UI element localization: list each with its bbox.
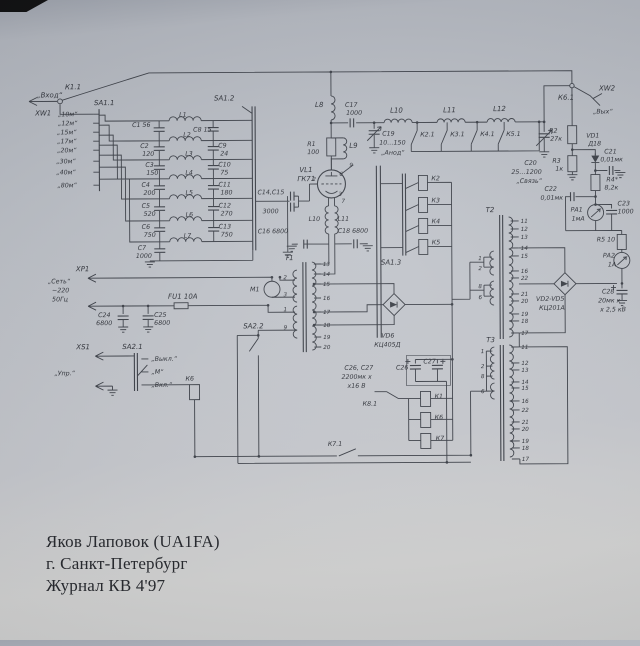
c27-label: С27: [423, 358, 435, 365]
l11f-label: L11: [338, 216, 350, 223]
k81-label: К8.1: [363, 401, 378, 408]
pi-l12-label: L12: [493, 105, 506, 113]
k51-label: К5.1: [506, 131, 521, 138]
c20-label: С20: [524, 160, 536, 167]
c22-value: 0,01мк: [541, 195, 564, 202]
cap-value: 24: [220, 150, 228, 157]
t2-pin: 21: [521, 292, 528, 298]
t1-pin: 1: [284, 307, 288, 313]
cap-label: С3: [145, 162, 153, 169]
t1-pin: 19: [323, 335, 331, 341]
c2627-note: С26, С27: [344, 365, 373, 372]
vl1-label: VL1: [299, 166, 312, 174]
t1-pin: 16: [323, 296, 331, 302]
t2-pin: 20: [521, 299, 529, 305]
c19-note: „Анод“: [381, 150, 405, 157]
pa2-meter-icon: [614, 252, 630, 268]
pos-m-label: „М“: [151, 369, 164, 376]
tube-pin: 9: [349, 163, 353, 169]
t3-pin: 22: [522, 408, 530, 414]
t2-pin: 14: [521, 246, 529, 252]
t1-pin: 3: [283, 292, 287, 298]
t2-pin: 19: [521, 312, 529, 318]
c1415-value: 3000: [263, 208, 279, 215]
sa22-label: SA2.2: [243, 322, 264, 330]
r3-label: R3: [552, 158, 560, 165]
band-label: „12м“: [58, 120, 78, 127]
t2-pin: 18: [521, 319, 529, 325]
r3-value: 1к: [555, 166, 563, 173]
t2-pin: 13: [521, 235, 529, 241]
cap-label: С12: [219, 202, 231, 209]
t2-pin: 17: [521, 331, 529, 337]
cap-value: 150: [146, 170, 158, 177]
c17-label: С17: [345, 102, 357, 109]
pa1-value: 1мА: [572, 216, 585, 223]
c19-label: С19: [382, 131, 394, 138]
sa21-label: SA2.1: [122, 343, 142, 351]
cap-value: 750: [144, 232, 156, 239]
m1-label: М1: [250, 286, 259, 293]
k2-label: К2: [431, 175, 440, 182]
band-label: „30м“: [56, 158, 76, 165]
vd1-label: VD1: [586, 133, 599, 140]
c18-label: С18 6800: [338, 228, 368, 235]
c25-label: С25: [154, 312, 166, 319]
k61-label: К6.1: [558, 94, 574, 102]
c28-value: 20мк х: [598, 297, 621, 304]
k6b-label: К6: [435, 414, 444, 421]
k31-label: К3.1: [450, 131, 465, 138]
band-label: „10м“: [58, 111, 78, 118]
k41-label: К4.1: [480, 131, 495, 138]
c24-label: С24: [98, 312, 110, 319]
cap-value: 1000: [136, 253, 152, 260]
c22-label: С22: [544, 186, 556, 193]
pos-on-label: „Вкл.“: [151, 382, 172, 389]
t1-pin: 17: [323, 310, 331, 316]
l8-label: L8: [315, 101, 324, 109]
pos-off-label: „Выкл.“: [151, 356, 177, 363]
t3-pin: 16: [522, 399, 530, 405]
cap-label: С13: [219, 223, 231, 230]
t3-pin: 15: [522, 386, 530, 392]
c21-value: 0,01мк: [600, 156, 623, 163]
tube-pin: 3: [338, 192, 342, 198]
t1-pin: 9: [284, 325, 288, 331]
scanned-schematic-page: { "footer": {"line1": "Яков Лаповок (UA1…: [0, 0, 640, 640]
r4-label: R4*: [606, 176, 618, 183]
c16-label: С16 6800: [258, 228, 288, 235]
c23-label: С23: [618, 200, 630, 207]
t1-pin: 18: [323, 323, 331, 329]
sa12-label: SA1.2: [214, 94, 235, 102]
c17-value: 1000: [346, 110, 362, 117]
coil-label: L2: [183, 132, 191, 139]
vd1-type: Д18: [587, 141, 601, 148]
t2-label: Т2: [486, 206, 495, 214]
c28-value2: х 2,5 кВ: [599, 306, 626, 313]
k3-label: К3: [432, 197, 441, 204]
t3-pin: 18: [522, 446, 530, 452]
t2-pin: 11: [521, 219, 528, 225]
mains-voltage: ~220: [52, 287, 69, 294]
fu1-label: FU1 10А: [168, 293, 198, 301]
t2-pin: 12: [521, 227, 529, 233]
tube-pin: 2: [312, 177, 316, 183]
sa13-label: SA1.3: [381, 259, 401, 267]
k6-coil-label: К6: [185, 376, 194, 383]
c24-value: 6800: [96, 320, 112, 327]
t2-pin: 1: [478, 256, 482, 262]
pa1-meter-icon: [588, 205, 604, 221]
cap-value: 520: [144, 211, 156, 218]
cap-value: 120: [142, 151, 154, 158]
t3-pin: 21: [522, 420, 529, 426]
vd25-label: VD2-VD5: [536, 296, 564, 303]
band-label: „15м“: [57, 129, 77, 136]
c28-label: С28: [602, 288, 614, 295]
cap-value: 750: [221, 231, 233, 238]
cap-value: 180: [220, 189, 232, 196]
vd6-type: КЦ405Д: [374, 342, 400, 349]
cap-label: С10: [218, 161, 230, 168]
l10f-label: L10: [309, 216, 321, 223]
cap-label: С4: [141, 182, 149, 189]
t3-pin: 8: [481, 374, 485, 380]
pa2-value: 1А: [608, 261, 616, 268]
caption-journal: Журнал КВ 4'97: [46, 575, 220, 597]
t1-pin: 20: [323, 345, 331, 351]
t2-pin: 16: [521, 269, 529, 275]
coil-label: L1: [179, 112, 187, 119]
tube-pin: 6: [339, 172, 343, 178]
t3-pin: 19: [522, 439, 530, 445]
c20-value: 25…1200: [511, 169, 541, 176]
c1415-label: С14,С15: [257, 189, 284, 196]
cap-value: 200: [143, 190, 155, 197]
t2-pin: 6: [478, 295, 482, 301]
cap-label: С7: [138, 245, 146, 252]
r2-value: 27к: [550, 136, 562, 143]
devices: [106, 146, 630, 395]
pi-l10-label: L10: [390, 107, 403, 115]
r4-value: 8,2к: [604, 184, 618, 191]
cap-value: 270: [221, 210, 233, 217]
cap-label: С2: [140, 143, 148, 150]
c20-note: „Связь“: [516, 178, 542, 185]
t3-pin: 1: [481, 349, 485, 355]
t3-pin: 13: [521, 368, 529, 374]
vd25-bridge-icon: [554, 273, 576, 295]
c23-value: 1000: [618, 208, 634, 215]
sa11-label: SA1.1: [94, 99, 114, 107]
upr-label: „Упр.“: [54, 370, 75, 377]
vyh-label: „Вых“: [593, 108, 613, 115]
coil-label: L7: [184, 233, 192, 240]
c2627-note: 2200мк х: [341, 374, 372, 381]
c21-label: С21: [604, 148, 616, 155]
band-label: „17м“: [57, 138, 77, 145]
caption-block: Яков Лаповок (UA1FA) г. Санкт-Петербург …: [46, 531, 220, 597]
t1-label: Т1: [285, 254, 294, 262]
k11-label: К1.1: [65, 83, 81, 91]
t3-pin: 6: [481, 389, 485, 395]
band-label: „40м“: [56, 169, 76, 176]
wires: [29, 70, 628, 466]
input-label: „Вход“: [37, 91, 63, 99]
c26-label: С26: [396, 365, 408, 372]
cap-label: С8 15: [193, 127, 211, 134]
coil-label: L5: [185, 190, 193, 197]
t3-pin: 20: [522, 427, 530, 433]
cap-label: С9: [218, 142, 226, 149]
t2-pin: 2: [478, 266, 482, 272]
r1-label: R1: [307, 141, 315, 148]
c19-value: 10…150: [379, 140, 405, 147]
cap-label: С11: [218, 181, 230, 188]
t3-pin: 17: [522, 457, 530, 463]
band-label: „20м“: [57, 147, 77, 154]
t2-pin: 8: [478, 284, 482, 290]
t2-pin: 15: [521, 254, 529, 260]
xw2-label: XW2: [598, 84, 616, 92]
mains-label: „Сеть“: [48, 278, 71, 285]
t1-pin: 15: [323, 282, 331, 288]
pi-l11-label: L11: [443, 106, 456, 114]
t3-pin: 11: [521, 345, 528, 351]
k21-label: К2.1: [420, 131, 435, 138]
t1-pin: 14: [323, 272, 331, 278]
xw1-label: XW1: [34, 109, 51, 117]
cap-label: С5: [142, 203, 150, 210]
k4-label: К4: [432, 218, 441, 225]
caption-city: г. Санкт-Петербург: [46, 553, 220, 575]
pa2-label: РА2: [603, 252, 615, 259]
vd25-type: КЦ201А: [539, 305, 565, 312]
c2627-note: х16 В: [346, 383, 365, 390]
caption-author: Яков Лаповок (UA1FA): [46, 531, 220, 553]
cap-value: 75: [220, 169, 228, 176]
band-label: „80м“: [57, 182, 77, 189]
t1-pin: 13: [323, 262, 331, 268]
mains-freq: 50Гц: [52, 296, 68, 303]
cap-label: С1 56: [132, 122, 150, 129]
t2-pin: 22: [521, 276, 529, 282]
xs1-label: ХS1: [75, 343, 90, 351]
r5-label: R5 10: [597, 236, 615, 243]
c25-value: 6800: [154, 320, 170, 327]
r2-label: R2: [549, 128, 557, 135]
t1-pin: 2: [283, 275, 287, 281]
coil-label: L6: [186, 212, 194, 219]
pa1-label: РА1: [571, 207, 583, 214]
k1-label: К1: [435, 393, 444, 400]
r1-value: 100: [307, 149, 319, 156]
coil-label: L4: [185, 170, 193, 177]
k5-label: К5: [432, 239, 441, 246]
t3-label: Т3: [486, 336, 495, 344]
t3-pin: 2: [481, 364, 485, 370]
vd6-bridge-icon: [383, 294, 405, 316]
tube-pin: 7: [342, 199, 346, 205]
coil-label: L3: [185, 151, 193, 158]
t3-pin: 12: [521, 361, 529, 367]
vd6-label: VD6: [381, 333, 394, 340]
l9-label: L9: [349, 142, 358, 150]
k71-label: К7.1: [328, 441, 343, 448]
xp1-label: ХР1: [75, 265, 90, 273]
k7-label: К7: [436, 435, 445, 442]
cap-label: С6: [142, 224, 150, 231]
